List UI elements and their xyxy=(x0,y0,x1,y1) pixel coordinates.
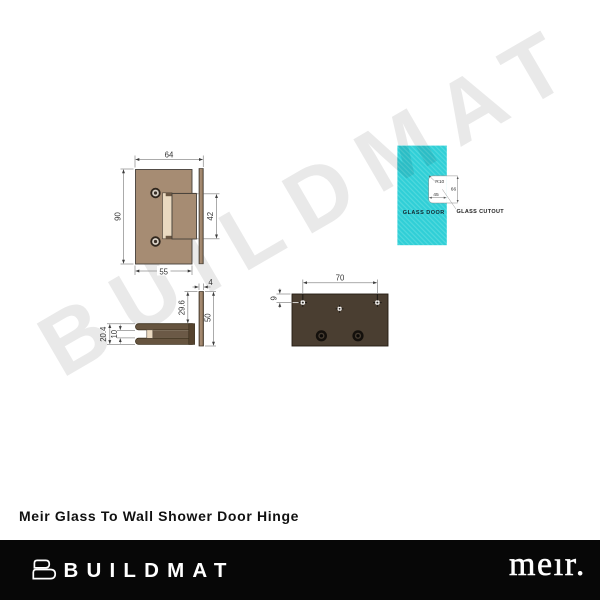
svg-text:GLASS CUTOUT: GLASS CUTOUT xyxy=(457,209,505,215)
svg-text:42: 42 xyxy=(206,212,215,221)
svg-text:90: 90 xyxy=(114,212,123,221)
svg-text:64: 64 xyxy=(165,150,174,159)
svg-text:45: 45 xyxy=(433,192,439,198)
svg-text:GLASS DOOR: GLASS DOOR xyxy=(403,210,445,216)
svg-text:70: 70 xyxy=(336,274,345,283)
svg-text:4: 4 xyxy=(208,278,213,287)
svg-text:50: 50 xyxy=(203,313,212,322)
svg-text:55: 55 xyxy=(159,267,168,276)
svg-text:20.4: 20.4 xyxy=(99,326,108,342)
svg-text:29.6: 29.6 xyxy=(177,300,186,315)
svg-text:66: 66 xyxy=(451,187,457,193)
svg-text:9: 9 xyxy=(269,296,278,300)
svg-text:R10: R10 xyxy=(435,179,444,185)
svg-text:10: 10 xyxy=(110,329,119,338)
